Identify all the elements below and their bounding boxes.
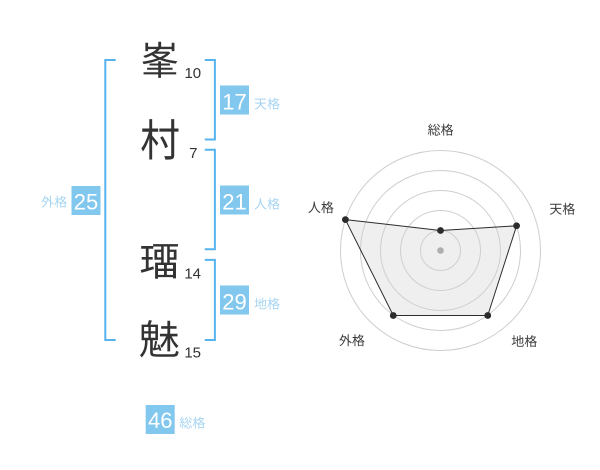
svg-text:21: 21 (222, 189, 246, 214)
svg-text:25: 25 (74, 189, 98, 214)
svg-text:46: 46 (148, 408, 172, 433)
svg-text:14: 14 (184, 265, 201, 282)
svg-text:7: 7 (189, 145, 197, 162)
svg-text:10: 10 (184, 65, 201, 82)
svg-text:17: 17 (222, 89, 246, 114)
svg-text:15: 15 (184, 344, 201, 361)
svg-text:29: 29 (222, 290, 246, 315)
